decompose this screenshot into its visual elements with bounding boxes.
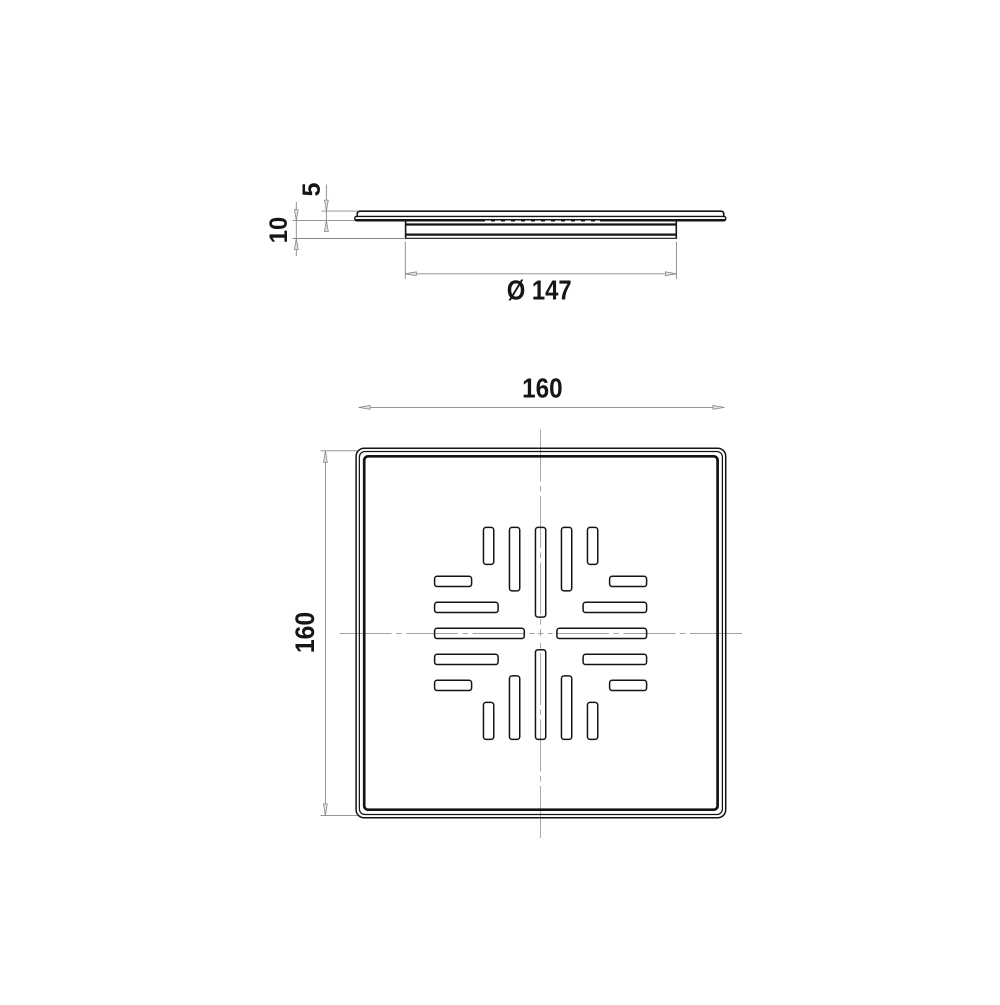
svg-text:5: 5: [298, 182, 326, 196]
svg-text:10: 10: [265, 217, 293, 244]
svg-text:160: 160: [522, 373, 563, 404]
svg-text:160: 160: [290, 612, 320, 653]
svg-text:Ø 147: Ø 147: [507, 275, 572, 306]
